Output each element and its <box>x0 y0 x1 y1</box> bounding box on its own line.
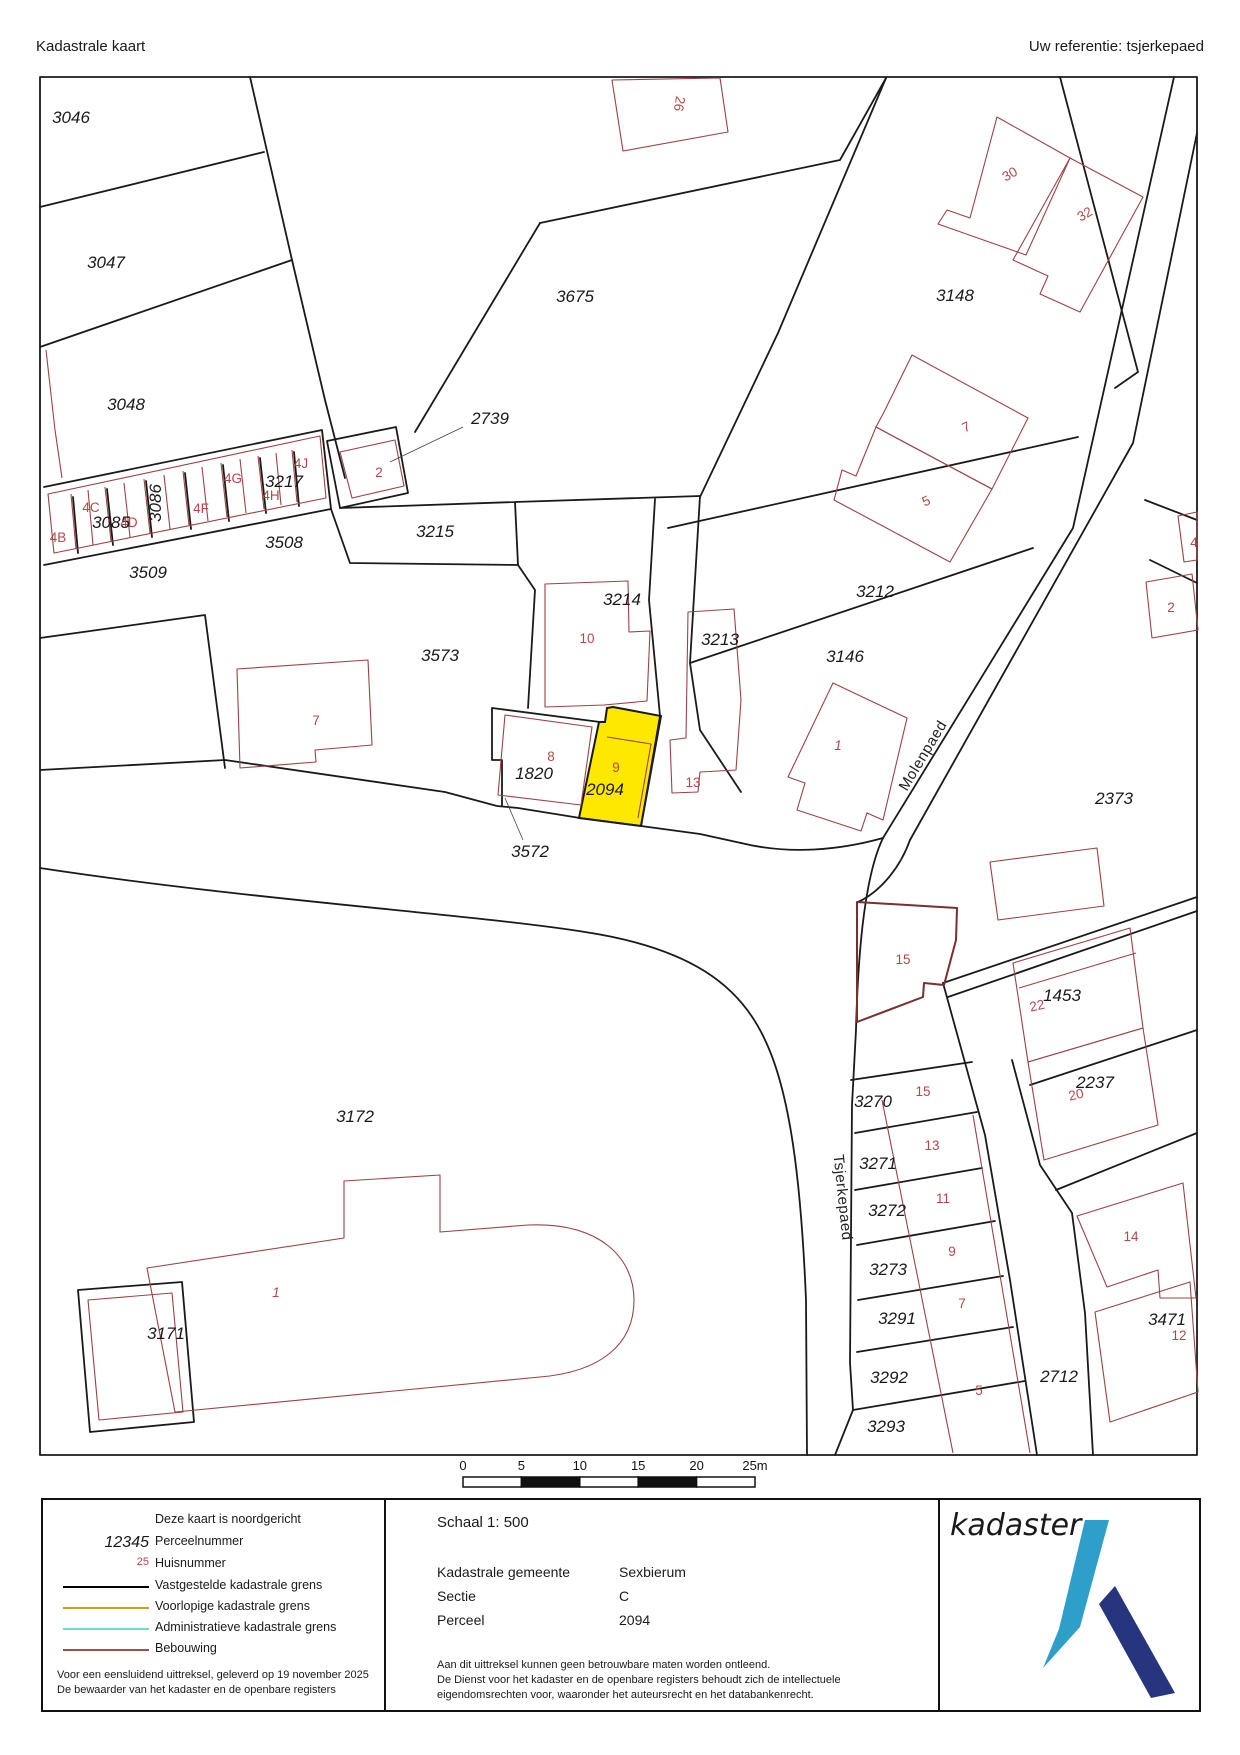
parcel-number-label: 3212 <box>856 582 894 601</box>
house-number-label: 2 <box>375 465 383 480</box>
scale-bar-segment <box>697 1477 755 1487</box>
info-row-label: Perceel <box>437 1612 484 1628</box>
legend-label: Voorlopige kadastrale grens <box>155 1599 310 1613</box>
legend-line-sample <box>63 1586 149 1588</box>
disclaimer-line: eigendomsrechten voor, waaronder het aut… <box>437 1688 841 1703</box>
parcel-number-label: 3572 <box>511 842 549 861</box>
house-number-label: 1 <box>272 1285 280 1300</box>
scale-tick-label: 0 <box>459 1458 466 1473</box>
house-number-label: 4G <box>224 471 242 486</box>
house-number-label: 15 <box>895 952 910 967</box>
scale-tick-label: 5 <box>518 1458 525 1473</box>
legend-sample-huis: 25 <box>57 1556 149 1568</box>
house-number-label: 7 <box>958 1296 966 1311</box>
house-number-label: 22 <box>1028 997 1046 1015</box>
info-row: Kadastrale gemeenteSexbierum <box>437 1564 570 1580</box>
house-number-label: 11 <box>936 1191 950 1206</box>
scale-tick-label: 10 <box>573 1458 587 1473</box>
legend-footnote-line2: De bewaarder van het kadaster en de open… <box>57 1683 369 1698</box>
house-number-label: 4C <box>82 500 100 515</box>
house-number-label: 1 <box>834 738 842 753</box>
parcel-number-label: 3675 <box>556 287 594 306</box>
house-number-label: 4B <box>50 530 67 545</box>
house-number-label: 15 <box>915 1084 930 1099</box>
parcel-number-label: 3270 <box>854 1092 892 1111</box>
parcel-number-label: 3046 <box>52 108 90 127</box>
legend-row: 12345Perceelnummer <box>43 1534 384 1554</box>
parcel-number-label: 1820 <box>515 764 553 783</box>
legend-row: Voorlopige kadastrale grens <box>43 1599 384 1619</box>
legend-line-sample <box>63 1628 149 1630</box>
parcel-number-label: 2373 <box>1094 789 1133 808</box>
info-row-label: Kadastrale gemeente <box>437 1564 570 1580</box>
legend-footnote: Voor een eensluidend uittreksel, gelever… <box>57 1668 369 1698</box>
disclaimer: Aan dit uittreksel kunnen geen betrouwba… <box>437 1658 841 1703</box>
house-number-label: 32 <box>1074 204 1095 225</box>
parcel-number-label: 3573 <box>421 646 459 665</box>
parcel-number-label: 3291 <box>878 1309 916 1328</box>
kadaster-logo-icon <box>938 1500 1199 1706</box>
parcel-number-label: 2712 <box>1039 1367 1078 1386</box>
legend-row: Vastgestelde kadastrale grens <box>43 1578 384 1598</box>
legend-label: Bebouwing <box>155 1641 217 1655</box>
parcel-number-label: 3509 <box>129 563 167 582</box>
scale-tick-label: 20 <box>689 1458 703 1473</box>
house-number-label: 5 <box>975 1383 983 1398</box>
house-number-label: 30 <box>999 164 1020 185</box>
parcel-number-label: 3047 <box>87 253 125 272</box>
legend-row: 25Huisnummer <box>43 1556 384 1576</box>
parcel-number-label: 3086 <box>146 484 165 522</box>
north-note: Deze kaart is noordgericht <box>155 1512 301 1526</box>
parcel-number-label: 3171 <box>147 1324 185 1343</box>
scale-bar-segment <box>521 1477 579 1487</box>
house-number-label: 12 <box>1171 1328 1186 1343</box>
parcel-number-label: 3214 <box>603 590 641 609</box>
info-row: SectieC <box>437 1588 476 1604</box>
house-number-label: 13 <box>685 775 700 790</box>
legend-row: Bebouwing <box>43 1641 384 1661</box>
house-number-label: 4 <box>1190 535 1198 550</box>
parcel-number-label: 3213 <box>701 630 739 649</box>
parcel-number-label: 1453 <box>1043 986 1081 1005</box>
house-number-label: 26 <box>671 95 688 112</box>
disclaimer-line: Aan dit uittreksel kunnen geen betrouwba… <box>437 1658 841 1673</box>
info-cell: Schaal 1: 500 Kadastrale gemeenteSexbier… <box>384 1500 938 1710</box>
legend-footnote-line1: Voor een eensluidend uittreksel, gelever… <box>57 1668 369 1683</box>
parcel-number-label: 3293 <box>867 1417 905 1436</box>
legend-cell: Deze kaart is noordgericht 12345Perceeln… <box>43 1500 384 1710</box>
parcel-number-label: 2739 <box>470 409 509 428</box>
legend-line-sample <box>63 1649 149 1651</box>
info-row-value: Sexbierum <box>619 1564 686 1580</box>
house-number-label: 10 <box>579 631 594 646</box>
parcel-number-label: 3172 <box>336 1107 374 1126</box>
leader-lines <box>390 427 523 840</box>
parcel-number-label: 2094 <box>585 780 624 799</box>
scale-tick-label: 15 <box>631 1458 645 1473</box>
parcel-number-label: 3146 <box>826 647 864 666</box>
house-number-label: 4D <box>120 515 138 530</box>
legend-line-sample <box>63 1607 149 1609</box>
parcel-number-label: 3273 <box>869 1260 907 1279</box>
disclaimer-line: De Dienst voor het kadaster en de openba… <box>437 1673 841 1688</box>
house-number-label: 4H <box>262 488 279 503</box>
legend-label: Vastgestelde kadastrale grens <box>155 1578 322 1592</box>
highlight-parcel-2094 <box>579 707 661 826</box>
house-number-label: 20 <box>1067 1086 1085 1104</box>
kadastrale-kaart-page: { "header": { "title": "Kadastrale kaart… <box>0 0 1240 1755</box>
info-row-value: 2094 <box>619 1612 650 1628</box>
house-number-label: 9 <box>948 1244 956 1259</box>
legend-row: Administratieve kadastrale grens <box>43 1620 384 1640</box>
house-number-label: 14 <box>1123 1229 1139 1244</box>
legend-label: Perceelnummer <box>155 1534 243 1548</box>
parcel-number-label: 3148 <box>936 286 974 305</box>
house-number-label: 4F <box>193 501 209 516</box>
cadastral-map: 0510152025m 3046304730483085308635093217… <box>0 0 1240 1755</box>
house-number-label: 9 <box>612 760 620 775</box>
info-row-value: C <box>619 1588 629 1604</box>
parcel-number-label: 3215 <box>416 522 454 541</box>
map-footer: Deze kaart is noordgericht 12345Perceeln… <box>41 1498 1201 1712</box>
house-number-label: 8 <box>547 749 555 764</box>
legend-sample-parcel: 12345 <box>57 1534 149 1552</box>
scale-bar-segment <box>638 1477 696 1487</box>
legend-label: Administratieve kadastrale grens <box>155 1620 336 1634</box>
parcel-number-label: 3048 <box>107 395 145 414</box>
info-row-label: Sectie <box>437 1588 476 1604</box>
logo-cell: kadaster <box>938 1500 1199 1710</box>
house-number-label: 5 <box>920 493 933 510</box>
parcel-number-label: 3272 <box>868 1201 906 1220</box>
parcel-number-label: 3292 <box>870 1368 908 1387</box>
legend-label: Huisnummer <box>155 1556 226 1570</box>
scale-bar: 0510152025m <box>459 1458 767 1487</box>
house-number-label: 4J <box>294 456 308 471</box>
house-number-label: 13 <box>924 1138 939 1153</box>
scale-tick-label: 25m <box>742 1458 767 1473</box>
house-number-label: 7 <box>960 419 973 436</box>
scale-bar-segment <box>463 1477 521 1487</box>
house-number-label: 2 <box>1167 600 1175 615</box>
info-row: Perceel2094 <box>437 1612 484 1628</box>
parcel-number-label: 3471 <box>1148 1310 1186 1329</box>
parcel-number-label: 3271 <box>859 1154 897 1173</box>
house-number-label: 7 <box>312 713 320 728</box>
scale-text: Schaal 1: 500 <box>437 1514 529 1531</box>
parcel-number-label: 3508 <box>265 533 303 552</box>
scale-bar-segment <box>580 1477 638 1487</box>
